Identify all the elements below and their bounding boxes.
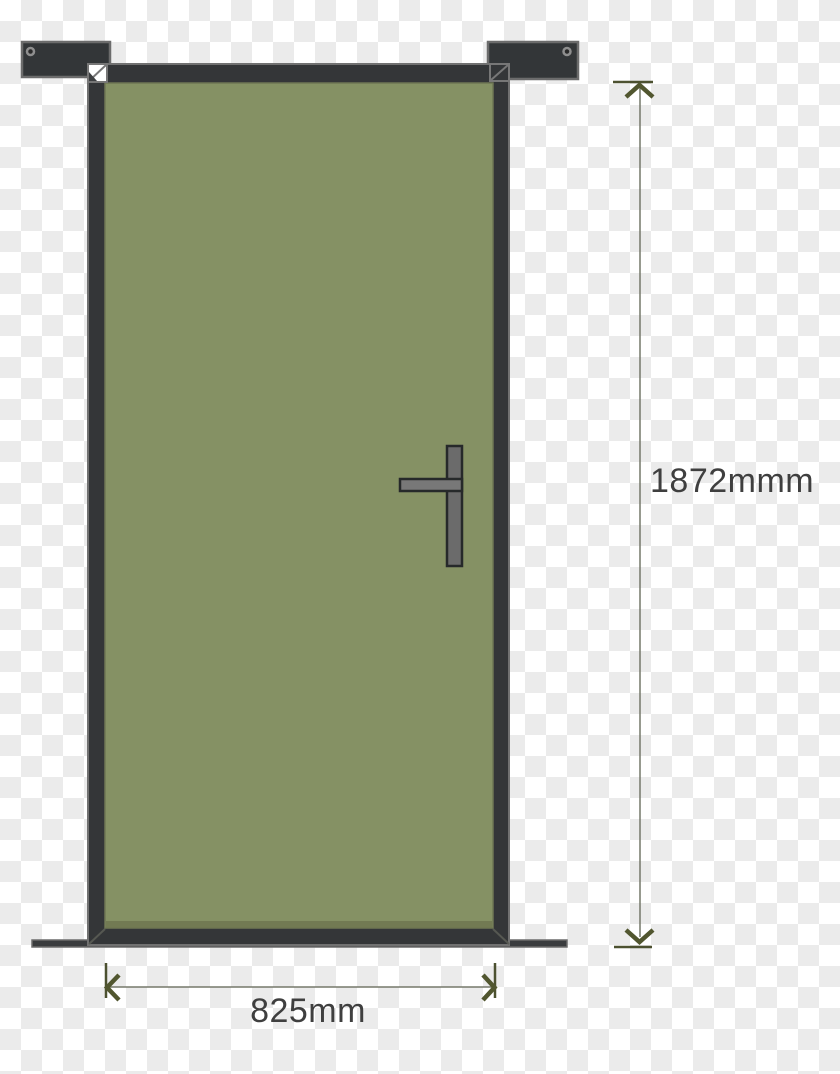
- door-dimension-diagram: 1872mmm 825mm: [0, 0, 840, 1074]
- door-panel: [105, 83, 493, 928]
- handle-lever: [400, 479, 462, 491]
- left-bracket-screw-hole-icon: [27, 48, 34, 55]
- width-dimension-label: 825mm: [240, 991, 376, 1032]
- height-dimension-line: [613, 82, 653, 947]
- door-panel-bottom-bevel: [106, 921, 492, 928]
- top-right-mitre-joint: [490, 64, 509, 81]
- handle-backplate: [447, 446, 462, 566]
- top-left-mitre-joint: [88, 64, 107, 82]
- right-bracket-screw-hole-icon: [564, 48, 571, 55]
- height-dimension-label: 1872mmm: [650, 461, 814, 502]
- door-diagram-graphic: [0, 0, 840, 1074]
